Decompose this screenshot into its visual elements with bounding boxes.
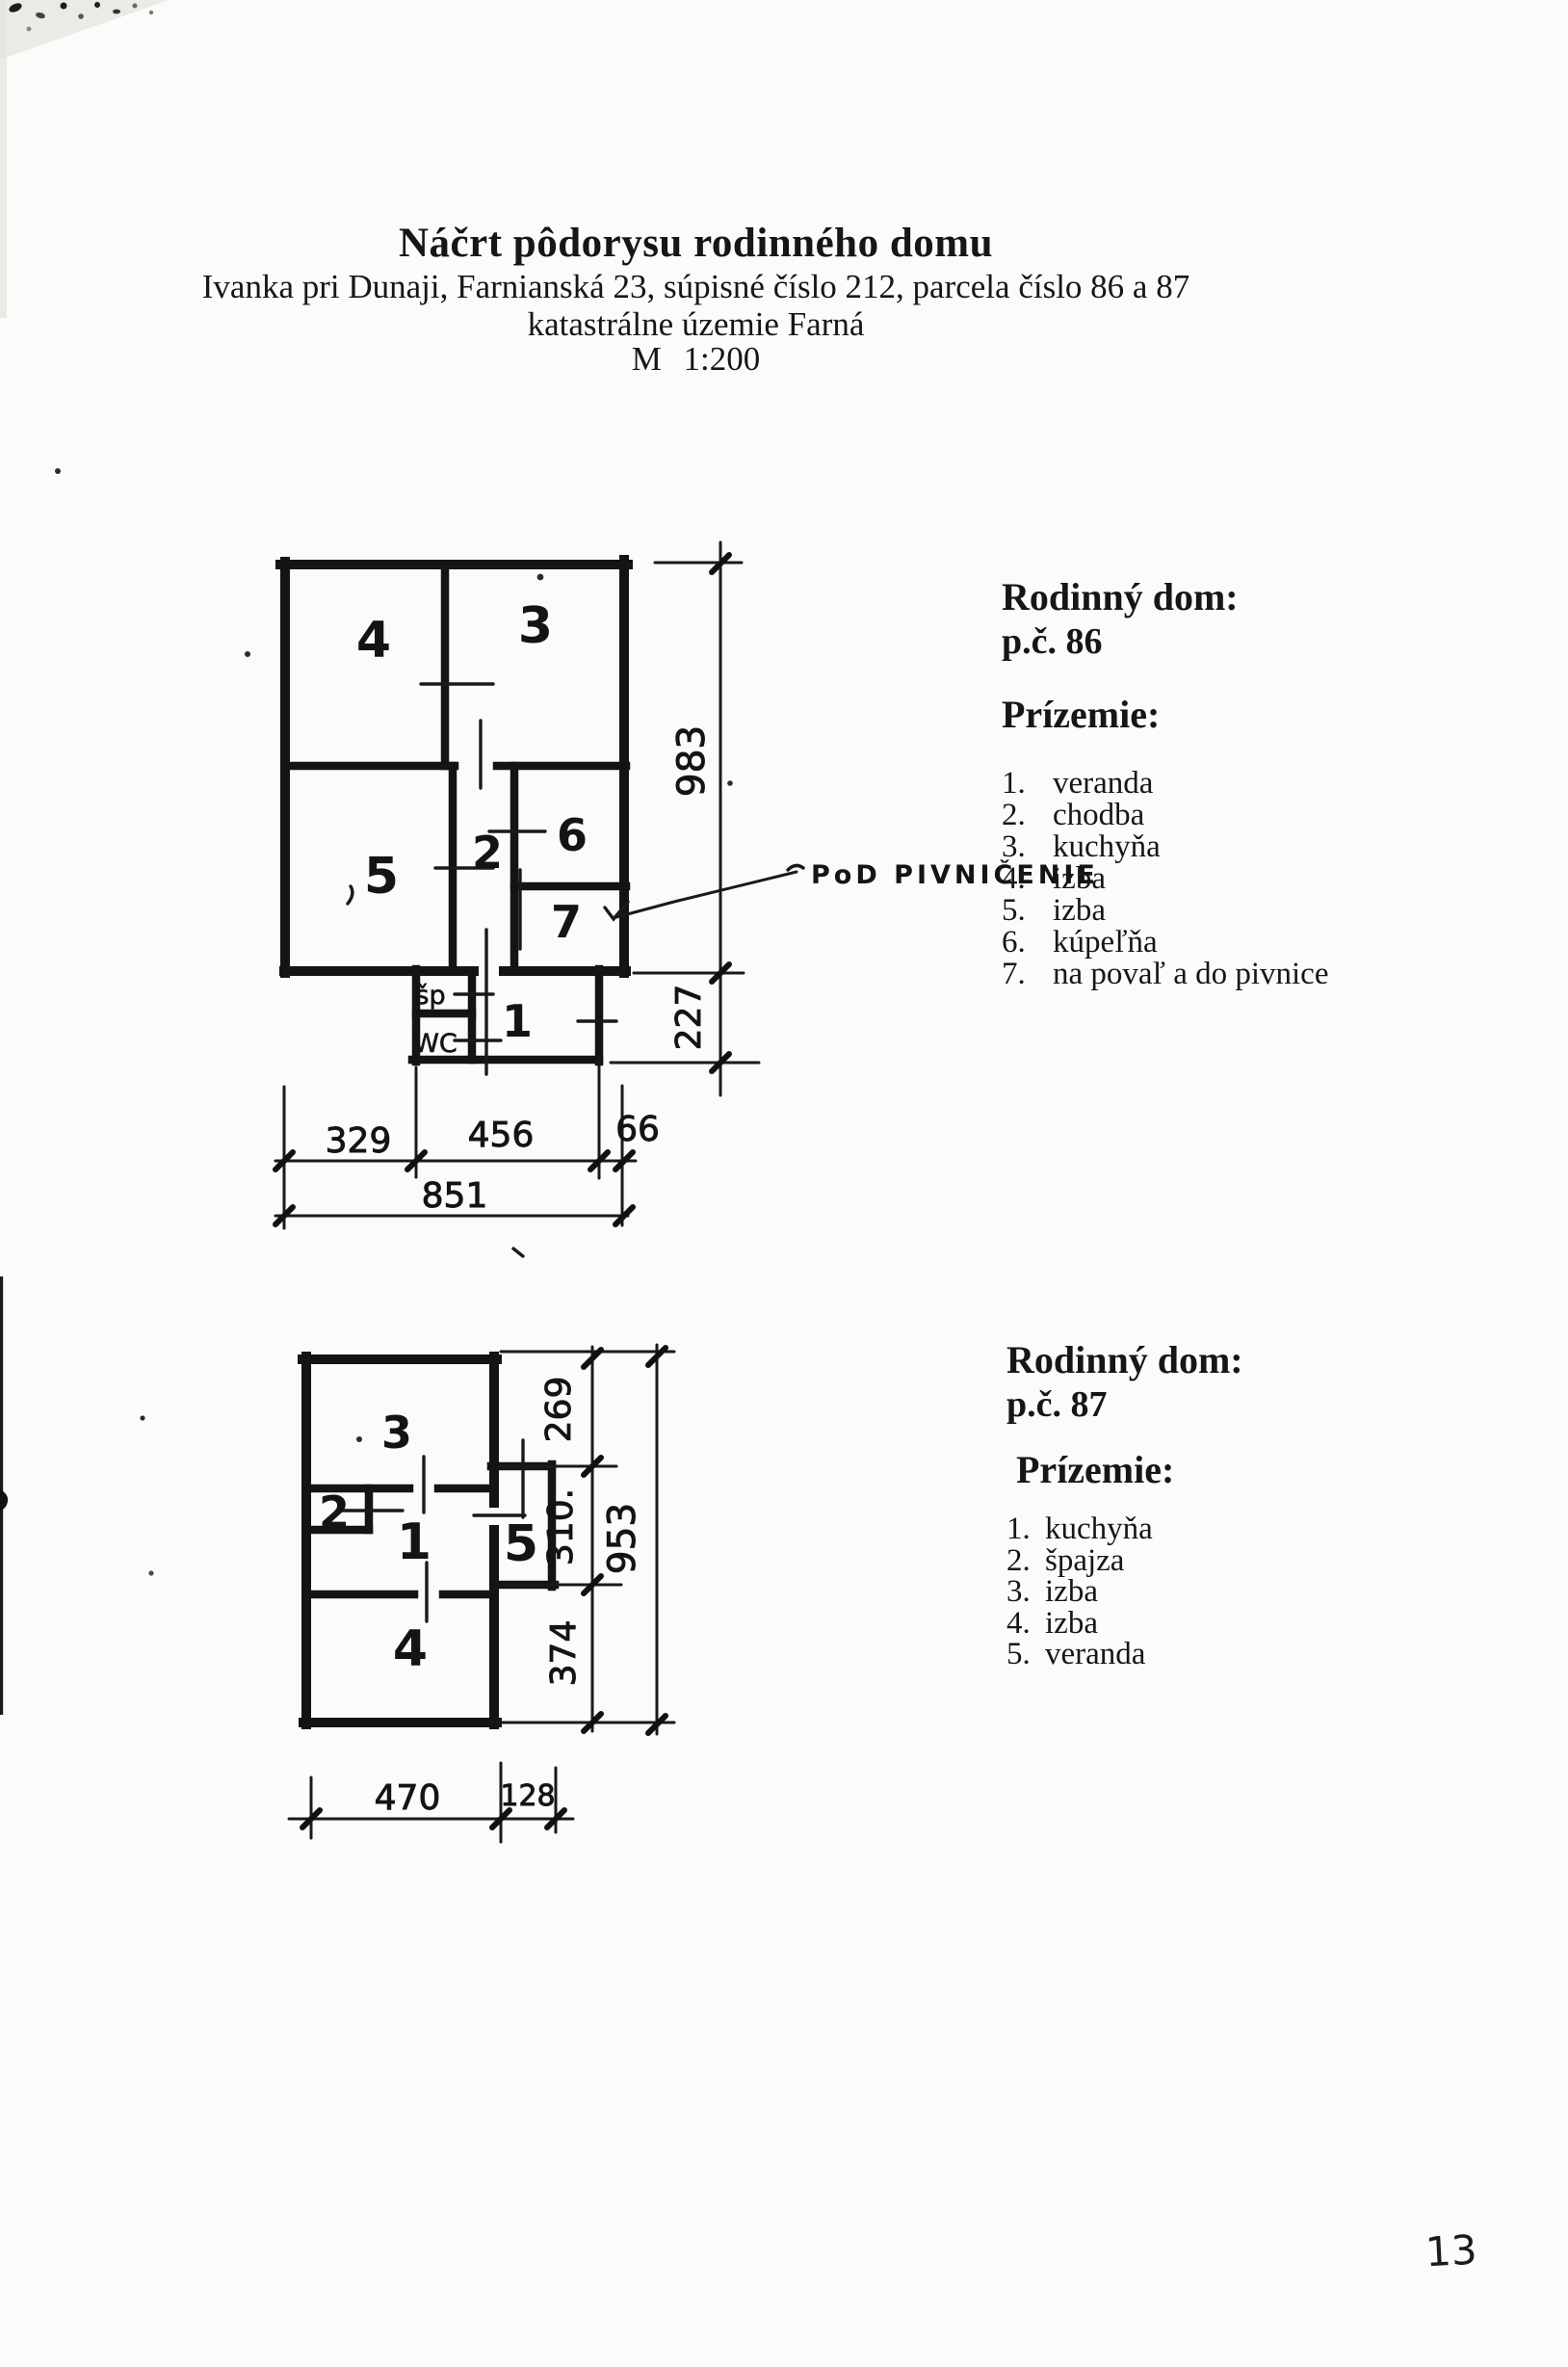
house-86-parcel-number: p.č. 86 <box>1002 620 1328 663</box>
room-list-number: 7. <box>1002 959 1053 990</box>
dim-128: 128 <box>500 1779 555 1813</box>
room-7-number: 7 <box>551 896 582 948</box>
room-3-number: 3 <box>518 597 553 655</box>
list-item: 5.veranda <box>1006 1639 1243 1670</box>
corner-shadow <box>0 0 169 60</box>
room-list-label: izba <box>1045 1608 1098 1640</box>
dim-851: 851 <box>422 1176 488 1216</box>
room-list-number: 5. <box>1006 1639 1045 1670</box>
room-2-number: 2 <box>319 1486 350 1539</box>
dim-374: 374 <box>544 1620 584 1687</box>
room-5-number: 5 <box>364 848 399 906</box>
house-86-floor-label: Prízemie: <box>1002 692 1328 737</box>
list-item: 4.izba <box>1006 1608 1243 1640</box>
room-list-number: 4. <box>1006 1608 1045 1640</box>
room-5-number: 5 <box>504 1515 538 1573</box>
room-1-number: 1 <box>502 995 533 1047</box>
room-4-number: 4 <box>356 612 391 670</box>
plan-86-bottom-dimensions: 329 456 66 851 <box>275 1057 660 1256</box>
room-3-number: 3 <box>381 1407 412 1459</box>
scanned-page: { "header": { "title": "Náčrt pôdorysu r… <box>0 0 1568 2367</box>
room-list-number: 6. <box>1002 927 1053 959</box>
floor-plan-87: 3 2 1 5 4 269 310. 374 953 <box>289 1345 674 1842</box>
room-list-label: izba <box>1053 895 1106 927</box>
list-item: 6.kúpeľňa <box>1002 927 1328 959</box>
room-list-number: 4. <box>1002 863 1053 895</box>
dim-983: 983 <box>670 725 714 797</box>
dim-269: 269 <box>539 1377 579 1443</box>
room-list-number: 1. <box>1006 1513 1045 1545</box>
left-edge-blob <box>0 1489 8 1511</box>
room-6-number: 6 <box>557 809 588 861</box>
list-item: 5.izba <box>1002 895 1328 927</box>
edge-streak <box>0 0 7 318</box>
room-2-number: 2 <box>472 827 503 879</box>
room-list-label: veranda <box>1053 768 1153 800</box>
list-item: 7.na povaľ a do pivnice <box>1002 959 1328 990</box>
room-list-number: 3. <box>1002 831 1053 863</box>
stray-pen-mark <box>513 1249 523 1256</box>
dim-310: 310. <box>541 1488 581 1565</box>
plan-86-room-numbers: 4 3 5 2 6 7 1 šp WC <box>348 597 588 1059</box>
room-list-label: na povaľ a do pivnice <box>1053 959 1328 990</box>
house-86-heading: Rodinný dom: <box>1002 576 1328 618</box>
room-list-label: izba <box>1053 863 1106 895</box>
room-4-number: 4 <box>393 1620 428 1678</box>
room-list-label: izba <box>1045 1576 1098 1608</box>
room-list-label: kuchyňa <box>1053 831 1161 863</box>
dim-470: 470 <box>375 1778 441 1818</box>
room-list-label: chodba <box>1053 800 1144 831</box>
house-87-heading: Rodinný dom: <box>1006 1339 1243 1381</box>
room-list-label: kuchyňa <box>1045 1513 1153 1545</box>
room-list-number: 2. <box>1002 800 1053 831</box>
plan-87-bottom-dimensions: 470 128 <box>289 1763 573 1842</box>
list-item: 2.chodba <box>1002 800 1328 831</box>
room-list-label: špajza <box>1045 1545 1124 1577</box>
dim-953: 953 <box>601 1503 644 1574</box>
pantry-label: šp <box>415 981 445 1011</box>
list-item: 2.špajza <box>1006 1545 1243 1577</box>
floor-plan-86: 4 3 5 2 6 7 1 šp WC 983 227 <box>275 542 1099 1256</box>
list-item: 1.veranda <box>1002 768 1328 800</box>
dim-456: 456 <box>468 1116 535 1155</box>
room-1-number: 1 <box>397 1513 431 1571</box>
room-5-comma-mark <box>348 886 353 904</box>
room-list-number: 2. <box>1006 1545 1045 1577</box>
room-list-number: 1. <box>1002 768 1053 800</box>
room-list-label: veranda <box>1045 1639 1145 1670</box>
page-number: 13 <box>1424 2226 1478 2276</box>
legend-house-87: Rodinný dom: p.č. 87 Prízemie: 1.kuchyňa… <box>1006 1339 1243 1670</box>
house-87-floor-label: Prízemie: <box>1016 1447 1243 1492</box>
room-list-number: 3. <box>1006 1576 1045 1608</box>
room-list-label: kúpeľňa <box>1053 927 1158 959</box>
house-87-room-list: 1.kuchyňa 2.špajza 3.izba 4.izba 5.veran… <box>1006 1513 1243 1670</box>
list-item: 3.kuchyňa <box>1002 831 1328 863</box>
house-86-room-list: 1.veranda 2.chodba 3.kuchyňa 4.izba 5.iz… <box>1002 768 1328 990</box>
house-87-parcel-number: p.č. 87 <box>1006 1383 1243 1426</box>
dim-227: 227 <box>669 985 709 1051</box>
legend-house-86: Rodinný dom: p.č. 86 Prízemie: 1.veranda… <box>1002 576 1328 990</box>
plan-87-room-numbers: 3 2 1 5 4 <box>319 1407 538 1678</box>
room-list-number: 5. <box>1002 895 1053 927</box>
plan-86-right-dimensions: 983 227 <box>611 542 759 1095</box>
dim-66: 66 <box>615 1110 660 1149</box>
dim-329: 329 <box>326 1121 392 1161</box>
list-item: 1.kuchyňa <box>1006 1513 1243 1545</box>
list-item: 4.izba <box>1002 863 1328 895</box>
list-item: 3.izba <box>1006 1576 1243 1608</box>
floor-plans-drawing: 4 3 5 2 6 7 1 šp WC 983 227 <box>0 0 1568 2367</box>
wc-label: WC <box>413 1029 457 1059</box>
